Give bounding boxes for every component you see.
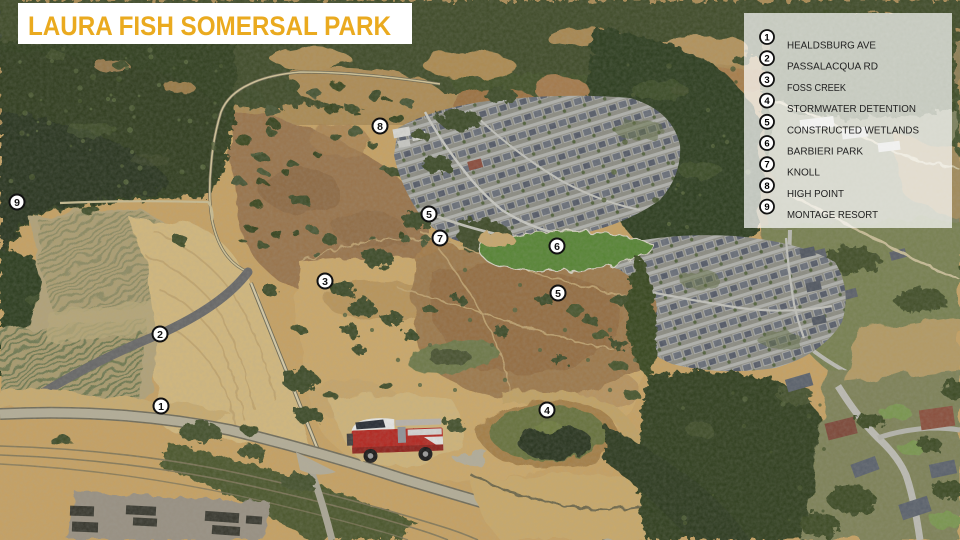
svg-text:5: 5 <box>426 209 432 221</box>
svg-text:4: 4 <box>544 405 550 417</box>
svg-text:8: 8 <box>377 121 383 133</box>
svg-text:1: 1 <box>158 401 164 413</box>
svg-text:KNOLL: KNOLL <box>787 168 820 179</box>
svg-text:5: 5 <box>764 117 770 128</box>
svg-text:PASSALACQUA RD: PASSALACQUA RD <box>787 62 878 73</box>
svg-text:HEALDSBURG AVE: HEALDSBURG AVE <box>787 41 876 52</box>
svg-text:1: 1 <box>764 33 770 44</box>
svg-text:8: 8 <box>764 181 769 192</box>
svg-text:BARBIERI PARK: BARBIERI PARK <box>787 147 863 158</box>
svg-text:9: 9 <box>764 202 769 213</box>
svg-text:9: 9 <box>14 197 20 209</box>
svg-text:7: 7 <box>764 160 769 171</box>
svg-text:3: 3 <box>764 75 769 86</box>
svg-text:CONSTRUCTED WETLANDS: CONSTRUCTED WETLANDS <box>787 125 919 136</box>
svg-text:FOSS CREEK: FOSS CREEK <box>787 83 846 94</box>
svg-text:2: 2 <box>764 54 769 65</box>
svg-text:LAURA FISH SOMERSAL PARK: LAURA FISH SOMERSAL PARK <box>28 11 391 41</box>
svg-text:3: 3 <box>322 276 328 288</box>
svg-text:4: 4 <box>764 96 770 107</box>
svg-text:HIGH POINT: HIGH POINT <box>787 189 844 200</box>
svg-text:6: 6 <box>554 241 560 253</box>
svg-text:MONTAGE RESORT: MONTAGE RESORT <box>787 210 878 221</box>
svg-text:6: 6 <box>764 139 769 150</box>
svg-text:5: 5 <box>555 288 561 300</box>
svg-text:STORMWATER DETENTION: STORMWATER DETENTION <box>787 104 916 115</box>
svg-text:7: 7 <box>437 233 443 245</box>
svg-text:2: 2 <box>157 329 163 341</box>
